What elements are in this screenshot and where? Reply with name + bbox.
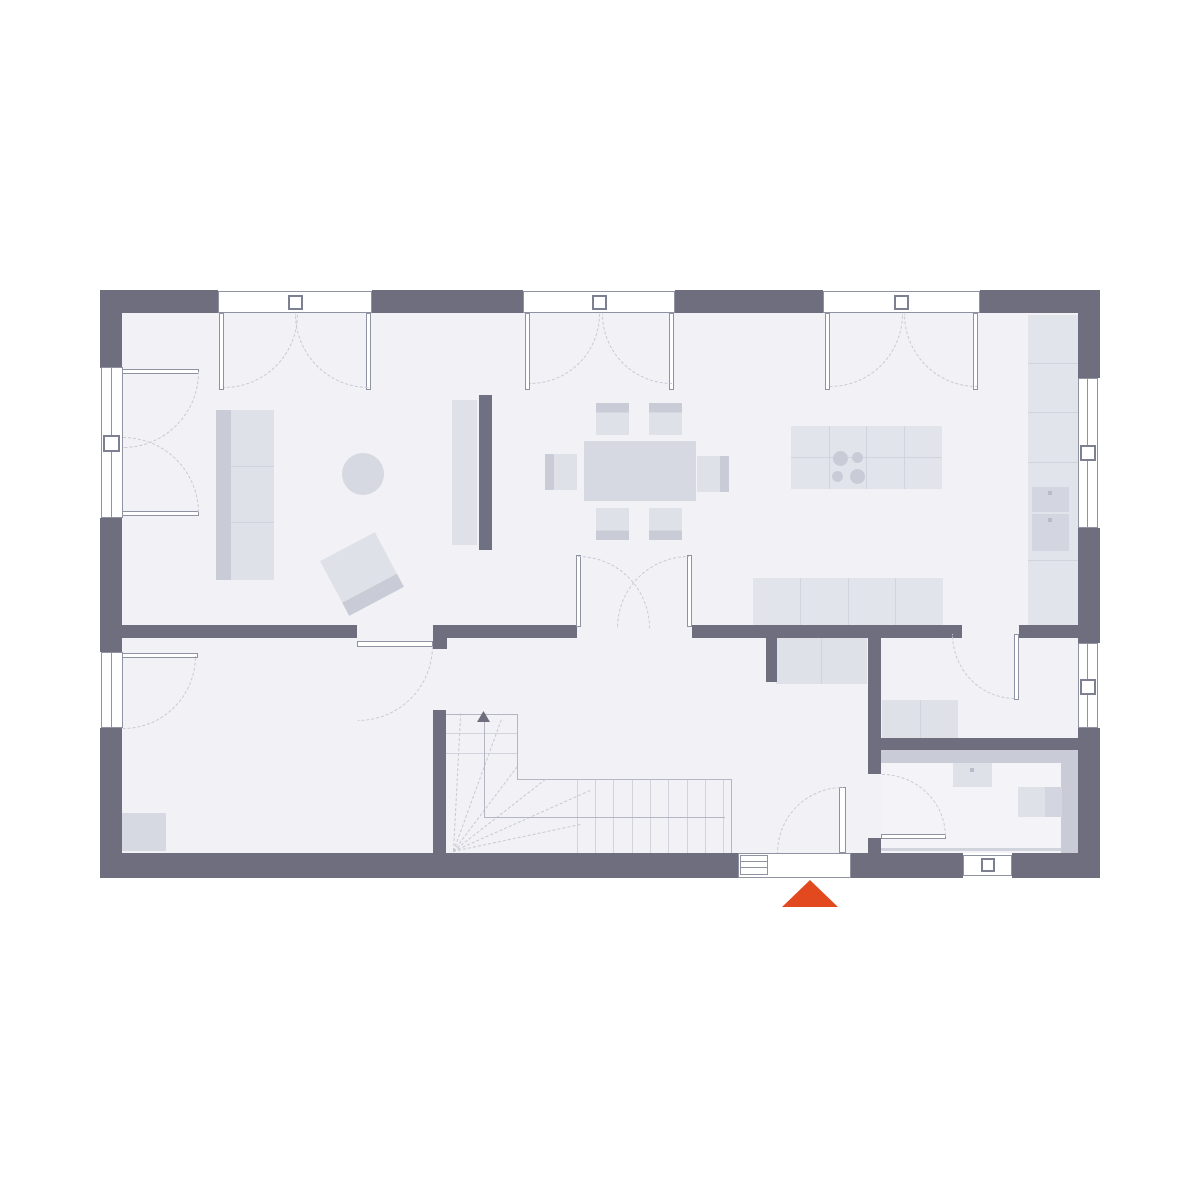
stair-walkline-vertical [484,719,485,818]
wall-bottom [100,853,738,878]
window-symbol [1080,679,1096,695]
wall-interior-hall [692,625,962,638]
pantry-cabinet-line [920,700,921,738]
kitchen-counter-line [1028,363,1078,364]
tech-room-band-right [1061,763,1078,853]
wall-right [1078,290,1100,378]
kitchen-counter-line [848,578,849,625]
dining-chair [596,403,629,435]
tech-room-band-top [881,750,1078,763]
window-mullion [111,652,112,728]
stair-walkline-horizontal [484,817,725,818]
dining-chair [545,454,577,490]
cooktop-burner [850,469,865,484]
window [101,652,123,728]
floor-plan-canvas [0,0,1200,1200]
wall-interior-living [122,625,357,638]
wall-tech-stub [868,838,881,853]
wall-hall-stub [766,638,777,682]
window-symbol [103,435,120,452]
stair-tread [446,733,517,734]
wall-top [372,290,523,313]
stair-tread [446,753,517,754]
dining-chair [697,456,729,492]
tv-sideboard [452,400,477,545]
wall-pantry-left [868,638,881,774]
wall-interior-kitchen [1019,625,1078,638]
wall-left [100,290,122,368]
cooktop-burner [833,451,848,466]
entrance-sidelight-line [740,861,768,862]
cooktop-burner [852,452,863,463]
window-symbol [592,295,607,310]
wall-interior-post [433,625,447,649]
wall-bottom [1012,853,1100,878]
dining-table [584,441,696,501]
window-symbol [894,295,909,310]
wall-stair [433,710,446,853]
wash-basin-dot [970,768,974,772]
tv-panel [479,395,492,550]
wash-basin [953,763,992,787]
window-symbol [981,858,995,872]
wall-interior-dining [447,625,577,638]
kitchen-counter-line [895,578,896,625]
entrance-sidelight-line [740,867,768,868]
oven-dot [1048,491,1052,495]
dining-chair [596,508,629,540]
cooktop-burner [832,471,843,482]
floor-plan [0,0,1200,1200]
sofa-seat-line [231,466,274,467]
stair-outline-right [731,779,732,853]
washing-machine-panel [1045,787,1062,817]
oven-dot [1048,518,1052,522]
wall-left [100,518,122,652]
dining-chair [649,403,682,435]
wall-tech-top [868,738,1078,750]
coffee-table [342,453,384,495]
entrance-marker [782,880,838,907]
entrance-sidelight [740,855,768,875]
stair-outline-mid [517,779,732,780]
stair-outline-corner [517,714,518,780]
kitchen-counter-tall [1028,315,1078,625]
wall-bottom [851,853,963,878]
kitchen-counter-line [800,578,801,625]
dining-chair [649,508,682,540]
kitchen-island-line [791,457,942,458]
kitchen-counter-line [1028,412,1078,413]
room-cabinet [122,813,166,851]
sofa-seat-line [231,522,274,523]
window-symbol [288,295,303,310]
window-symbol [1080,445,1096,461]
kitchen-counter-line [1028,462,1078,463]
sofa-backrest [216,410,231,580]
wall-top [675,290,823,313]
wall-right [1078,528,1100,643]
hall-wardrobe-line [821,638,822,684]
tech-room-band-bottom [881,848,1061,851]
kitchen-counter-line [1028,560,1078,561]
